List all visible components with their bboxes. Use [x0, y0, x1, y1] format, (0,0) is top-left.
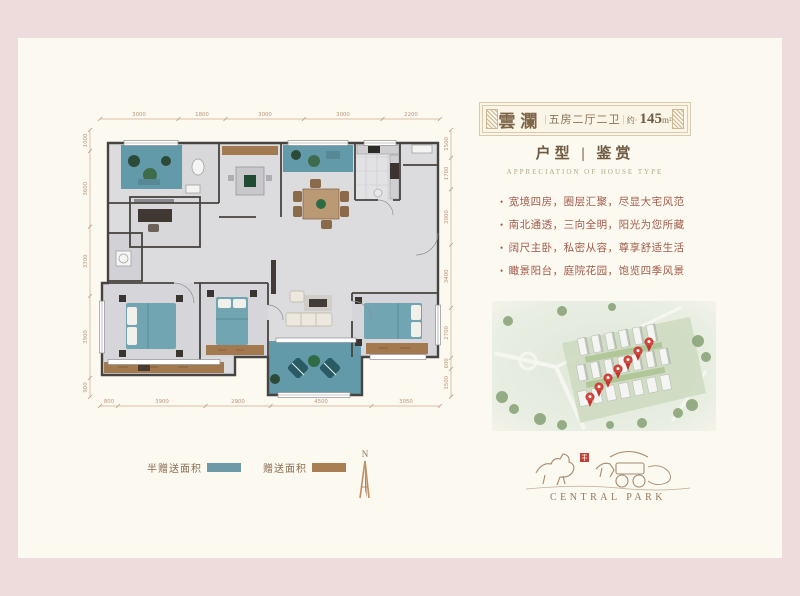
svg-text:3900: 3900	[155, 399, 169, 405]
area-legend: 半赠送面积 赠送面积	[147, 460, 346, 475]
legend-item-gift: 赠送面积	[263, 460, 346, 475]
legend-item-half-gift: 半赠送面积	[147, 460, 241, 475]
svg-text:1500: 1500	[444, 136, 450, 150]
svg-text:3900: 3900	[83, 330, 89, 344]
compass-north-label: N	[362, 449, 369, 459]
teal-balcony-south	[269, 341, 361, 394]
svg-text:1800: 1800	[195, 112, 209, 118]
svg-text:3000: 3000	[258, 112, 272, 118]
section-header: 户型 | 鉴赏 APPRECIATION OF HOUSE TYPE	[489, 142, 681, 176]
svg-text:600: 600	[444, 358, 450, 369]
svg-text:3300: 3300	[83, 254, 89, 268]
wardrobe-bedroom3	[366, 343, 428, 354]
selling-point: 瞰景阳台，庭院花园，饱览四季风景	[500, 260, 710, 283]
dimension-left: 1000 3600 3300 3900 900	[83, 128, 92, 399]
selling-point: 南北通透，三向全明，阳光为您所藏	[500, 214, 710, 237]
wardrobe-bedroom2	[206, 345, 264, 355]
svg-text:2700: 2700	[444, 325, 450, 339]
svg-text:3000: 3000	[132, 112, 146, 118]
ornament-left	[486, 109, 498, 129]
unit-area: 约· 145m²	[627, 111, 672, 128]
dimension-top: 3000 1800 3000 3000 2200	[98, 112, 442, 121]
brand-name: CENTRAL PARK	[550, 492, 666, 503]
bed-master	[119, 295, 183, 357]
legend-label: 赠送面积	[263, 460, 307, 475]
svg-text:3050: 3050	[399, 399, 413, 405]
svg-text:1700: 1700	[444, 166, 450, 180]
svg-text:4500: 4500	[314, 399, 328, 405]
unit-name: 雲瀾	[498, 107, 542, 132]
svg-text:2900: 2900	[231, 399, 245, 405]
brand-logo: CENTRAL PARK	[518, 443, 698, 510]
svg-text:1000: 1000	[83, 133, 89, 147]
unit-layout: 五房二厅二卫	[549, 111, 621, 127]
ornament-right	[672, 109, 684, 129]
svg-text:3600: 3600	[83, 181, 89, 195]
horse-carriage-illustration	[526, 452, 690, 491]
dimension-bottom: 800 3900 2900 4500 3050	[98, 399, 442, 408]
cabinet-tearoom	[222, 146, 278, 155]
bed-bedroom3	[355, 297, 422, 346]
selling-points: 宽境四房，圈层汇聚，尽显大宅风范 南北通透，三向全明，阳光为您所藏 阔尺主卧，私…	[500, 191, 710, 283]
section-title-en: APPRECIATION OF HOUSE TYPE	[489, 168, 681, 176]
site-aerial-map	[492, 301, 716, 436]
legend-swatch-teal	[207, 463, 241, 472]
unit-title-card: 雲瀾 | 五房二厅二卫 | 约· 145m²	[479, 102, 691, 136]
svg-text:3000: 3000	[444, 210, 450, 224]
selling-point: 宽境四房，圈层汇聚，尽显大宅风范	[500, 191, 710, 214]
section-title-cn: 户型 | 鉴赏	[489, 142, 681, 163]
svg-text:900: 900	[83, 382, 89, 393]
svg-text:1500: 1500	[444, 375, 450, 389]
dimension-right: 1500 1700 3000 3400 2700 600 1500	[444, 128, 453, 399]
teal-balcony-north-left	[121, 145, 182, 189]
brochure-panel: 3000 1800 3000 3000 2200 800 3900 2900 4…	[18, 38, 782, 558]
legend-label: 半赠送面积	[147, 460, 202, 475]
svg-text:800: 800	[104, 399, 115, 405]
teal-balcony-north-right	[283, 145, 353, 172]
svg-text:3000: 3000	[336, 112, 350, 118]
svg-text:2200: 2200	[404, 112, 418, 118]
svg-text:3400: 3400	[444, 269, 450, 283]
compass-icon: N	[352, 446, 378, 509]
legend-swatch-brown	[312, 463, 346, 472]
floor-plan: 3000 1800 3000 3000 2200 800 3900 2900 4…	[78, 105, 462, 422]
selling-point: 阔尺主卧，私密从容，尊享舒适生活	[500, 237, 710, 260]
